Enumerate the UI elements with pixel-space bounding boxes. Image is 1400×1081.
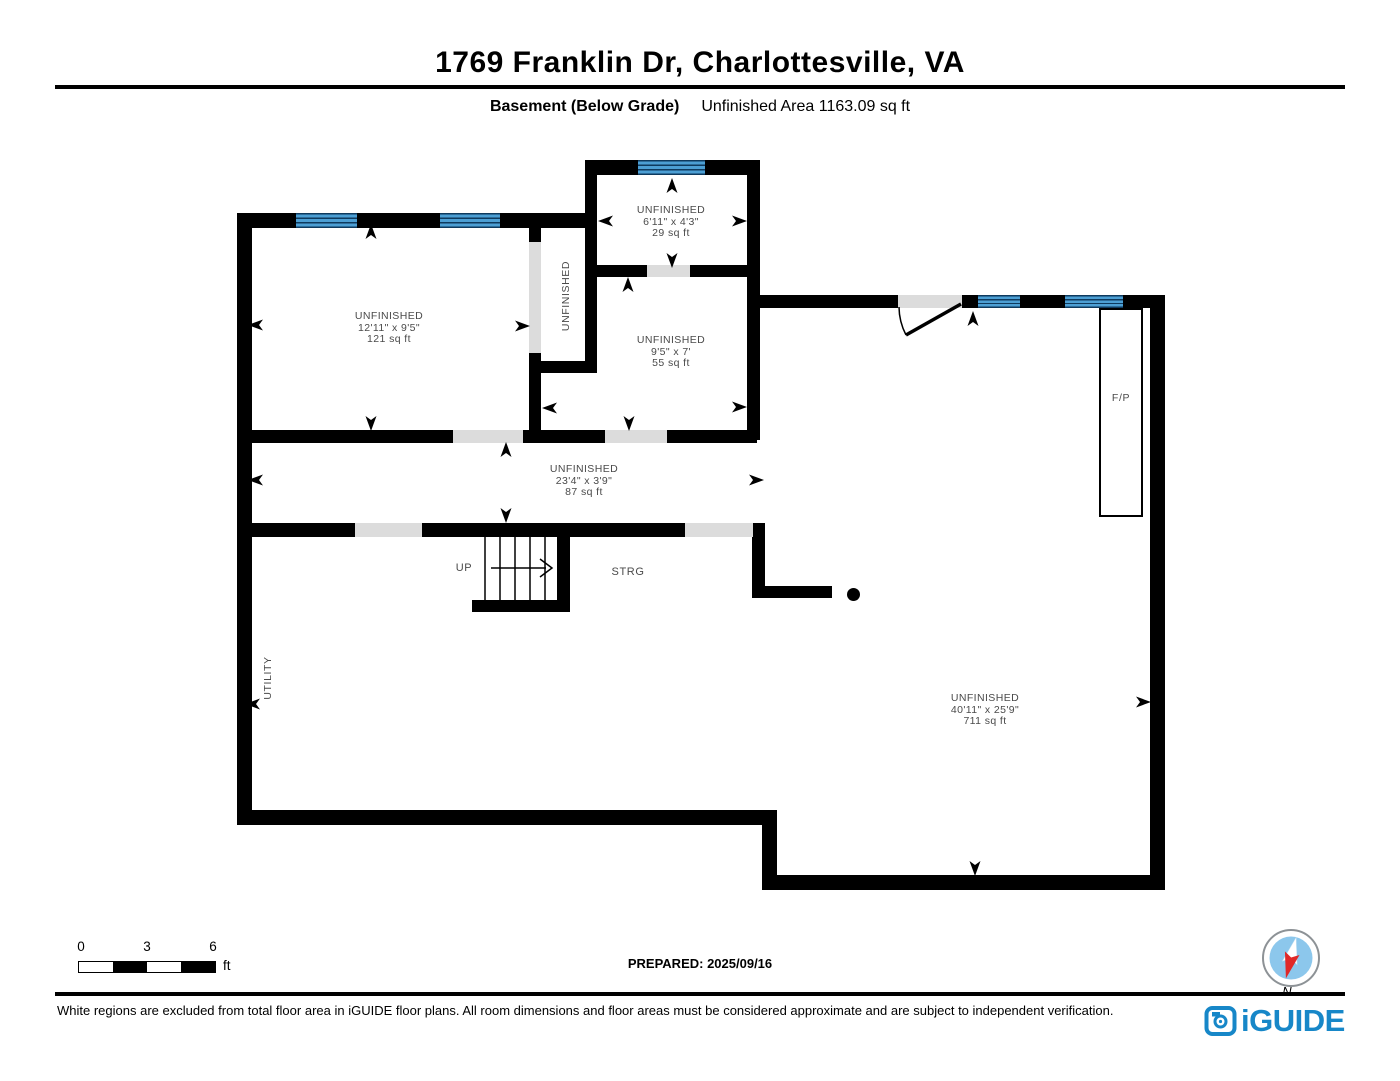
window — [296, 213, 357, 228]
door-opening — [647, 265, 690, 277]
room-area: 55 sq ft — [637, 358, 705, 370]
window — [638, 160, 705, 175]
door-swing-arc — [899, 307, 906, 335]
wall-segment — [1123, 295, 1165, 308]
dimension-arrow — [667, 178, 678, 193]
room-area: 121 sq ft — [355, 334, 423, 346]
support-column — [847, 588, 860, 601]
door-leaf — [906, 304, 961, 335]
room-name: UNFINISHED — [355, 311, 423, 323]
room-area: 87 sq ft — [550, 487, 618, 499]
room-label-unfinished-121: UNFINISHED 12'11" x 9'5" 121 sq ft — [355, 311, 423, 346]
room-name: UNFINISHED — [951, 693, 1019, 705]
dimension-arrow — [732, 216, 747, 227]
floor-subtitle: Basement (Below Grade)Unfinished Area 11… — [0, 98, 1400, 116]
fireplace-box — [1099, 308, 1143, 517]
door-opening — [529, 242, 541, 353]
window — [440, 213, 500, 228]
closet-label: UNFINISHED — [560, 261, 572, 331]
iguide-wordmark: iGUIDE — [1241, 1003, 1345, 1039]
wall-segment — [585, 228, 597, 373]
stairs-direction-arrowhead — [540, 559, 552, 577]
room-area: 29 sq ft — [637, 228, 705, 240]
fireplace-label: F/P — [1112, 392, 1130, 404]
wall-segment — [762, 875, 1165, 890]
door-opening — [605, 430, 667, 443]
floor-plan-page: 1769 Franklin Dr, Charlottesville, VA Ba… — [0, 0, 1400, 1081]
prepared-date: PREPARED: 2025/09/16 — [0, 956, 1400, 971]
iguide-camera-icon — [1203, 1002, 1239, 1040]
wall-segment — [962, 295, 978, 308]
unfinished-area-label: Unfinished Area 1163.09 sq ft — [701, 98, 910, 115]
window — [978, 295, 1020, 308]
header-divider — [55, 85, 1345, 89]
wall-segment — [1020, 295, 1065, 308]
room-name: UNFINISHED — [550, 464, 618, 476]
room-label-unfinished-29: UNFINISHED 6'11" x 4'3" 29 sq ft — [637, 205, 705, 240]
room-label-unfinished-87: UNFINISHED 23'4" x 3'9" 87 sq ft — [550, 464, 618, 499]
dimension-arrow — [624, 416, 635, 431]
wall-segment — [237, 810, 777, 825]
door-opening — [355, 523, 422, 537]
storage-label: STRG — [612, 566, 645, 578]
dimension-arrow — [732, 402, 747, 413]
room-name: UNFINISHED — [637, 205, 705, 217]
wall-segment — [1150, 295, 1165, 890]
utility-label: UTILITY — [262, 656, 274, 699]
footer-divider — [55, 992, 1345, 996]
room-name: UNFINISHED — [637, 335, 705, 347]
dimension-arrow — [1136, 697, 1151, 708]
dimension-arrow — [749, 475, 764, 486]
dimension-arrow — [501, 508, 512, 523]
wall-segment — [237, 213, 252, 825]
door-swing — [899, 304, 961, 335]
wall-segment — [755, 295, 898, 308]
door-opening — [898, 295, 962, 308]
dimension-arrow — [598, 216, 613, 227]
dimension-arrow — [970, 861, 981, 876]
page-title: 1769 Franklin Dr, Charlottesville, VA — [0, 46, 1400, 80]
room-area: 711 sq ft — [951, 716, 1019, 728]
scale-tick-3: 3 — [143, 939, 151, 954]
dimension-arrow — [366, 416, 377, 431]
door-opening — [685, 523, 753, 537]
room-label-unfinished-55: UNFINISHED 9'5" x 7' 55 sq ft — [637, 335, 705, 370]
wall-segment — [472, 600, 570, 612]
dimension-arrow — [515, 321, 530, 332]
wall-segment — [752, 586, 832, 598]
scale-tick-0: 0 — [77, 939, 85, 954]
dimension-arrow — [501, 442, 512, 457]
room-label-unfinished-711: UNFINISHED 40'11" x 25'9" 711 sq ft — [951, 693, 1019, 728]
door-opening — [453, 430, 523, 443]
stairs-up-label: UP — [456, 562, 472, 574]
disclaimer-text: White regions are excluded from total fl… — [57, 1003, 1113, 1018]
floor-label: Basement (Below Grade) — [490, 98, 679, 115]
wall-segment — [529, 361, 597, 373]
dimension-arrow — [623, 277, 634, 292]
window — [1065, 295, 1123, 308]
dimension-arrow — [542, 403, 557, 414]
iguide-logo: iGUIDE — [1203, 1002, 1345, 1040]
wall-segment — [237, 213, 597, 228]
stairs — [485, 537, 552, 600]
dimension-arrow — [968, 311, 979, 326]
scale-tick-6: 6 — [209, 939, 217, 954]
